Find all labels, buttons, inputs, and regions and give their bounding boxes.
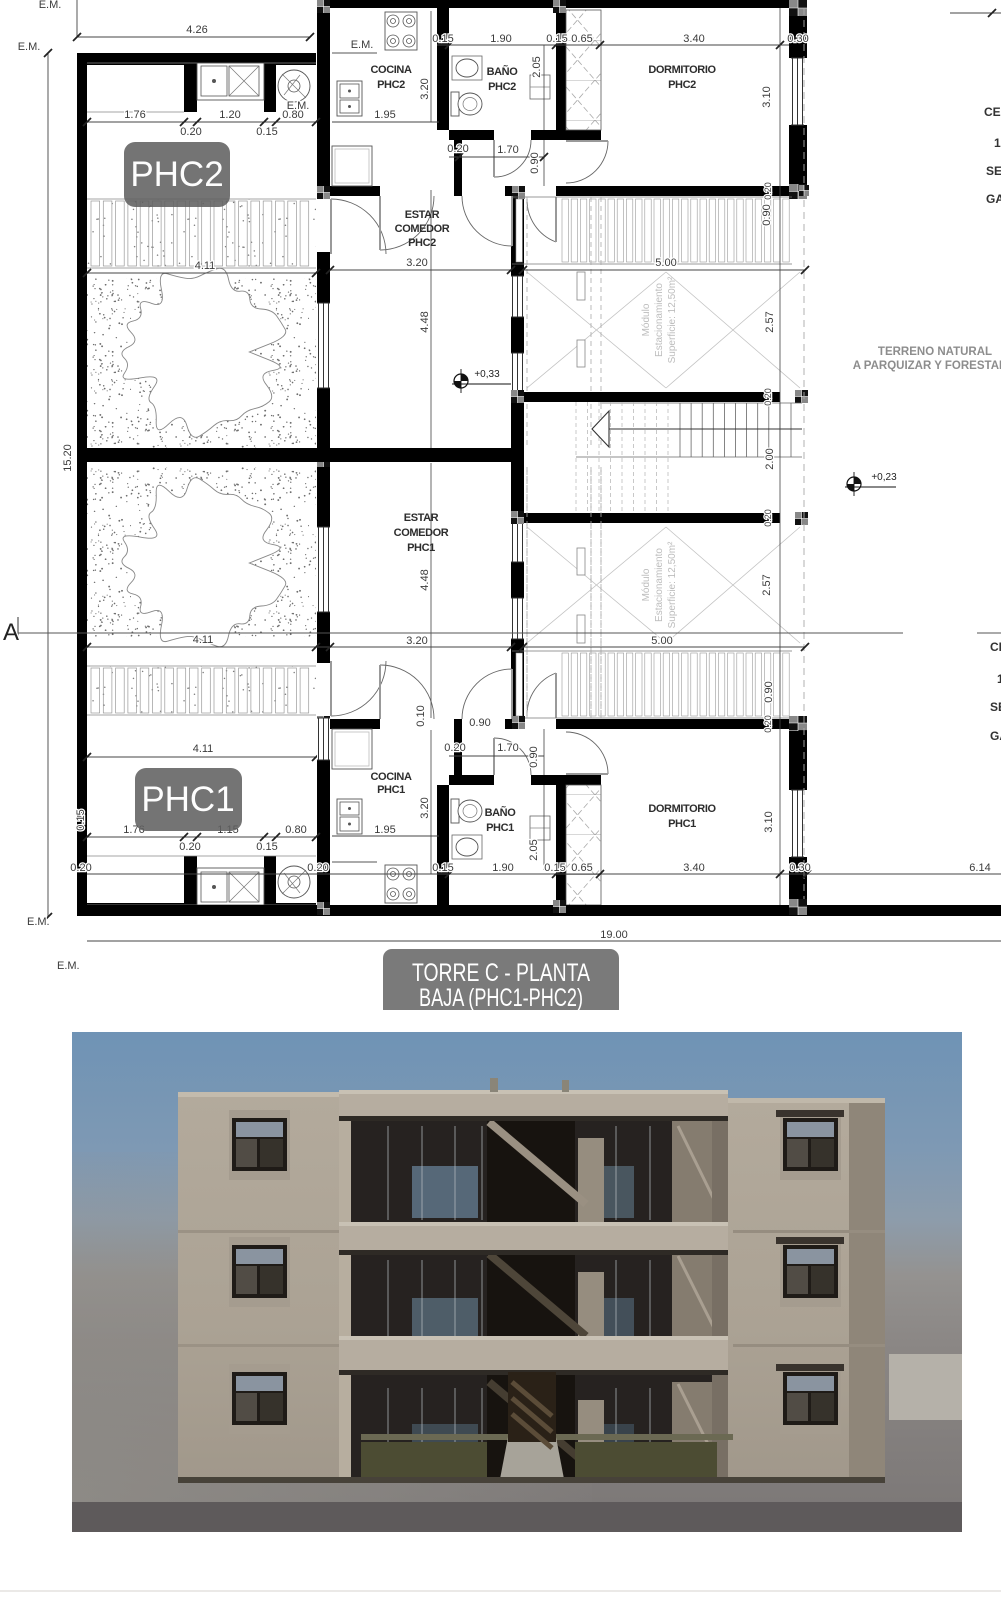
svg-text:1.95: 1.95 — [374, 109, 395, 121]
svg-text:3.40: 3.40 — [683, 862, 704, 874]
svg-text:1.95: 1.95 — [374, 824, 395, 836]
svg-text:Estacionamiento: Estacionamiento — [654, 548, 665, 622]
svg-text:0.20: 0.20 — [763, 509, 773, 527]
svg-text:COMEDOR: COMEDOR — [395, 223, 450, 235]
svg-text:19.00: 19.00 — [600, 929, 628, 941]
svg-text:3.10: 3.10 — [763, 811, 775, 832]
svg-text:2.57: 2.57 — [764, 311, 776, 332]
svg-text:PHC2: PHC2 — [488, 81, 516, 93]
svg-text:PHC2: PHC2 — [408, 237, 436, 249]
svg-text:3.40: 3.40 — [683, 33, 704, 45]
svg-text:GA: GA — [986, 192, 1001, 206]
svg-text:Superficie: 12,50m²: Superficie: 12,50m² — [667, 541, 678, 628]
svg-text:15.20: 15.20 — [62, 444, 74, 472]
svg-text:6.14: 6.14 — [969, 862, 990, 874]
svg-text:PHC2: PHC2 — [668, 79, 696, 91]
svg-text:1.70: 1.70 — [497, 742, 518, 754]
svg-text:A: A — [3, 619, 19, 646]
svg-text:1.20: 1.20 — [219, 109, 240, 121]
svg-text:5.00: 5.00 — [651, 635, 672, 647]
svg-text:CER: CER — [984, 105, 1001, 119]
svg-text:4.11: 4.11 — [193, 743, 214, 755]
svg-text:E.M.: E.M. — [57, 960, 80, 972]
svg-text:0.15: 0.15 — [432, 33, 453, 45]
svg-text:0.15: 0.15 — [432, 862, 453, 874]
svg-text:0.65: 0.65 — [571, 33, 592, 45]
svg-text:SE: SE — [986, 164, 1001, 178]
svg-text:4.11: 4.11 — [195, 260, 216, 272]
svg-text:A PARQUIZAR Y FORESTAR: A PARQUIZAR Y FORESTAR — [853, 360, 1001, 372]
svg-text:4.11: 4.11 — [193, 634, 214, 646]
svg-text:ESTAR: ESTAR — [405, 209, 440, 221]
svg-text:0.15: 0.15 — [75, 809, 87, 830]
svg-text:0.20: 0.20 — [180, 126, 201, 138]
svg-text:GA: GA — [990, 729, 1001, 743]
svg-text:3.20: 3.20 — [406, 257, 427, 269]
svg-text:PHC1: PHC1 — [407, 542, 435, 554]
svg-text:1.90: 1.90 — [490, 33, 511, 45]
svg-text:0.20: 0.20 — [447, 143, 468, 155]
svg-text:TORRE C - PLANTA: TORRE C - PLANTA — [412, 959, 590, 987]
svg-text:0.20: 0.20 — [70, 862, 91, 874]
svg-text:19: 19 — [997, 672, 1001, 686]
svg-text:0.20: 0.20 — [763, 715, 773, 733]
svg-text:0.20: 0.20 — [307, 862, 328, 874]
svg-text:2.00: 2.00 — [764, 448, 776, 469]
svg-text:PHC1: PHC1 — [141, 780, 234, 819]
svg-text:+0,33: +0,33 — [474, 369, 500, 380]
svg-text:Módulo: Módulo — [641, 568, 652, 601]
svg-text:4.48: 4.48 — [419, 569, 431, 590]
svg-text:0.20: 0.20 — [444, 742, 465, 754]
svg-text:3.20: 3.20 — [406, 635, 427, 647]
svg-text:1.76: 1.76 — [124, 109, 145, 121]
svg-text:0.90: 0.90 — [529, 152, 541, 173]
svg-text:PHC1: PHC1 — [377, 784, 405, 796]
svg-text:Módulo: Módulo — [641, 303, 652, 336]
svg-text:0.90: 0.90 — [761, 204, 773, 225]
svg-text:0.20: 0.20 — [763, 182, 773, 200]
svg-text:0.65: 0.65 — [571, 862, 592, 874]
svg-text:DORMITORIO: DORMITORIO — [648, 64, 716, 76]
svg-text:3.10: 3.10 — [761, 86, 773, 107]
svg-text:0.10: 0.10 — [415, 705, 427, 726]
svg-text:CER: CER — [990, 640, 1001, 654]
svg-text:0.90: 0.90 — [528, 746, 540, 767]
svg-text:3.20: 3.20 — [419, 797, 431, 818]
svg-text:PHC1: PHC1 — [486, 822, 514, 834]
svg-text:1.90: 1.90 — [492, 862, 513, 874]
svg-text:0.90: 0.90 — [763, 681, 775, 702]
svg-text:COMEDOR: COMEDOR — [394, 527, 449, 539]
svg-text:E.M.: E.M. — [18, 41, 41, 53]
svg-text:PHC1: PHC1 — [668, 818, 696, 830]
svg-text:E.M.: E.M. — [39, 0, 62, 11]
svg-text:DORMITORIO: DORMITORIO — [648, 803, 716, 815]
svg-text:2.05: 2.05 — [531, 56, 543, 77]
svg-text:Estacionamiento: Estacionamiento — [654, 283, 665, 357]
svg-text:0.15: 0.15 — [544, 862, 565, 874]
svg-text:COCINA: COCINA — [371, 771, 412, 783]
svg-text:0.80: 0.80 — [285, 824, 306, 836]
svg-text:ESTAR: ESTAR — [404, 512, 439, 524]
svg-text:BAÑO: BAÑO — [487, 65, 519, 78]
svg-text:4.48: 4.48 — [419, 311, 431, 332]
svg-text:0.15: 0.15 — [256, 841, 277, 853]
svg-text:2.05: 2.05 — [528, 839, 540, 860]
svg-text:0.20: 0.20 — [179, 841, 200, 853]
svg-text:0.80: 0.80 — [282, 109, 303, 121]
svg-text:0.90: 0.90 — [469, 717, 490, 729]
svg-text:COCINA: COCINA — [371, 64, 412, 76]
svg-text:PHC2: PHC2 — [377, 79, 405, 91]
svg-text:TERRENO NATURAL: TERRENO NATURAL — [878, 346, 992, 358]
svg-text:0.15: 0.15 — [546, 33, 567, 45]
svg-text:1.70: 1.70 — [497, 144, 518, 156]
svg-text:E.M.: E.M. — [351, 39, 374, 51]
svg-text:PHC2: PHC2 — [130, 155, 223, 194]
svg-text:2.57: 2.57 — [761, 574, 773, 595]
svg-text:BAÑO: BAÑO — [485, 806, 517, 819]
svg-text:+0,23: +0,23 — [871, 472, 897, 483]
svg-text:0.30: 0.30 — [789, 862, 810, 874]
svg-text:4.26: 4.26 — [186, 24, 207, 36]
svg-text:0.30: 0.30 — [787, 33, 808, 45]
svg-text:E.M.: E.M. — [27, 916, 50, 928]
svg-text:Superficie: 12,50m²: Superficie: 12,50m² — [667, 276, 678, 363]
svg-text:3.20: 3.20 — [419, 78, 431, 99]
svg-text:0.20: 0.20 — [763, 388, 773, 406]
svg-text:5.00: 5.00 — [655, 257, 676, 269]
svg-text:BAJA (PHC1-PHC2): BAJA (PHC1-PHC2) — [419, 984, 583, 1010]
svg-text:19: 19 — [994, 136, 1001, 150]
svg-text:0.15: 0.15 — [256, 126, 277, 138]
svg-text:SE: SE — [990, 700, 1001, 714]
